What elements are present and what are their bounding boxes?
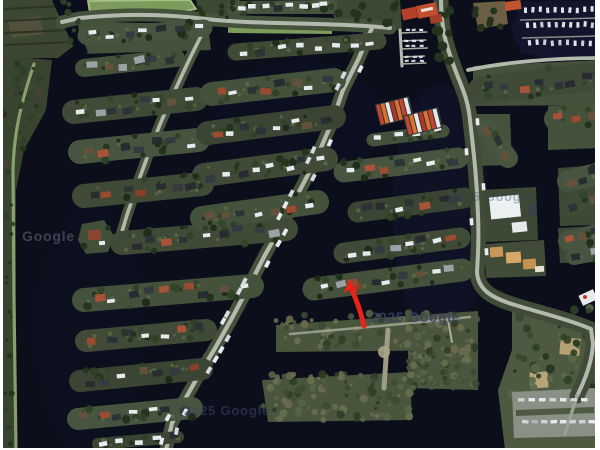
scrub: [318, 321, 326, 329]
scrub: [322, 382, 328, 388]
grass: [362, 284, 367, 289]
house: [255, 227, 265, 233]
house: [444, 264, 454, 272]
scrub: [368, 388, 376, 396]
tree: [444, 147, 449, 152]
tree: [389, 273, 396, 280]
scrub: [286, 372, 294, 380]
tree: [536, 91, 542, 97]
tree: [323, 36, 328, 41]
boat: [550, 40, 554, 46]
scrub: [394, 404, 399, 409]
house: [96, 109, 106, 116]
tree: [219, 10, 225, 16]
scrub: [433, 335, 440, 342]
tree: [131, 92, 137, 98]
moored-boat: [412, 40, 416, 42]
google-watermark-right: 2025 Google: [450, 190, 533, 204]
scrub: [383, 413, 391, 421]
tree: [201, 217, 205, 221]
scrub: [441, 360, 448, 367]
tree: [145, 34, 152, 41]
scrub: [392, 396, 400, 404]
grass: [447, 155, 451, 159]
grass: [134, 418, 137, 421]
boat: [539, 6, 542, 12]
scrub: [413, 327, 418, 332]
scrub: [343, 408, 348, 413]
grass: [426, 234, 429, 237]
shrub: [547, 375, 554, 382]
house: [374, 135, 381, 140]
tree: [328, 287, 333, 292]
shrub: [36, 89, 43, 96]
tree: [116, 54, 121, 59]
grass: [280, 200, 283, 203]
shrub: [6, 266, 9, 269]
house: [405, 199, 414, 206]
scrub: [292, 320, 295, 323]
house: [273, 5, 282, 12]
scrub: [418, 356, 421, 359]
satellite-map-canvas[interactable]: Google 2025 Google 2025 Google 2025 Goog…: [0, 0, 600, 450]
tree: [201, 11, 206, 16]
tree: [184, 225, 188, 229]
tree: [145, 247, 150, 252]
tree: [329, 83, 333, 87]
house: [315, 46, 322, 51]
beige-building: [535, 266, 544, 273]
grass: [84, 104, 87, 107]
house: [91, 192, 100, 199]
scrub: [322, 402, 330, 410]
scrub: [405, 412, 413, 420]
scrub: [332, 404, 338, 410]
house: [500, 84, 509, 90]
house: [177, 325, 186, 332]
tree-line: [434, 52, 444, 62]
house: [571, 253, 581, 260]
scrub: [407, 378, 414, 385]
house: [255, 127, 266, 135]
tree: [197, 6, 202, 11]
tree: [247, 49, 255, 57]
grass: [536, 87, 541, 92]
tree: [121, 39, 125, 43]
tree: [128, 337, 133, 342]
parked-caravan: [464, 148, 468, 155]
shrub: [20, 145, 27, 152]
tree: [241, 240, 249, 248]
tree: [335, 9, 343, 17]
boat: [554, 7, 557, 13]
house: [133, 146, 143, 153]
house: [119, 64, 128, 71]
boat: [524, 8, 527, 14]
shrub: [5, 281, 8, 284]
tree: [327, 3, 334, 10]
tree: [123, 415, 127, 419]
scrub: [274, 403, 278, 407]
house: [161, 238, 172, 246]
moored-boat: [420, 60, 424, 63]
boat: [576, 22, 579, 28]
scrub: [308, 374, 313, 379]
shrub: [38, 115, 41, 118]
tree: [441, 244, 445, 248]
house: [293, 79, 303, 87]
beige-building: [506, 251, 522, 263]
scrub: [344, 384, 350, 390]
tree: [139, 414, 147, 422]
house: [218, 87, 227, 94]
house: [372, 279, 381, 285]
shrub: [25, 97, 29, 101]
scrub: [274, 386, 280, 392]
house: [145, 236, 155, 243]
boat: [546, 8, 549, 14]
grass: [157, 55, 160, 58]
house: [117, 374, 126, 379]
parked-car: [549, 398, 556, 402]
boat: [535, 39, 539, 45]
house: [319, 1, 327, 6]
grass: [215, 218, 218, 221]
scrub: [285, 321, 289, 325]
house: [179, 237, 188, 243]
house: [248, 4, 256, 9]
grass: [254, 207, 257, 210]
scrub: [301, 320, 309, 328]
grass: [207, 166, 210, 169]
left-frame-border: [0, 0, 3, 450]
grass: [216, 238, 219, 241]
house: [194, 323, 204, 330]
tree: [97, 286, 104, 293]
boat: [543, 39, 547, 45]
tree: [283, 124, 290, 131]
grass: [125, 28, 129, 32]
scrub: [344, 380, 347, 383]
tree: [292, 91, 298, 97]
tree: [389, 155, 394, 160]
scrub: [438, 376, 443, 381]
tree: [208, 221, 212, 225]
scrub: [414, 332, 422, 340]
tree: [272, 89, 279, 96]
scrub: [360, 395, 368, 403]
scrub: [371, 377, 377, 383]
tree: [203, 225, 209, 231]
boat: [589, 41, 592, 47]
grass: [182, 336, 186, 340]
scrub: [284, 336, 287, 339]
tree: [585, 121, 592, 128]
grass: [124, 248, 128, 252]
house: [198, 291, 209, 299]
scrub: [320, 409, 326, 415]
house: [88, 30, 96, 35]
shrub: [18, 131, 22, 135]
scrub: [280, 409, 288, 417]
moored-boat: [411, 45, 415, 47]
boat: [533, 23, 536, 29]
scrub: [323, 345, 327, 349]
scrub: [384, 392, 392, 400]
grass: [290, 6, 294, 10]
tree: [387, 252, 395, 260]
shrub: [21, 84, 25, 88]
house: [213, 131, 223, 138]
boat: [540, 22, 544, 28]
scrub: [466, 328, 471, 333]
grass: [430, 130, 434, 134]
tree-line: [446, 57, 454, 65]
google-watermark-left: Google: [22, 228, 75, 244]
scrub: [318, 370, 326, 378]
tree: [397, 281, 404, 288]
islet-house: [88, 229, 102, 240]
grass: [174, 233, 178, 237]
grass: [315, 123, 317, 125]
tree: [223, 95, 230, 102]
shrub: [28, 83, 34, 89]
scrub: [326, 337, 331, 342]
tree: [165, 376, 172, 383]
scrub: [334, 345, 337, 348]
scrub: [410, 385, 416, 391]
house: [86, 61, 97, 68]
scrub: [354, 396, 357, 399]
house: [253, 167, 260, 172]
house: [232, 225, 242, 232]
parking-divider: [516, 410, 594, 413]
tree: [487, 17, 494, 24]
house: [132, 243, 142, 250]
grass: [242, 88, 245, 91]
scrub: [458, 339, 466, 347]
house: [165, 56, 175, 64]
tree: [303, 115, 307, 119]
grass: [498, 145, 502, 149]
tree: [267, 169, 272, 174]
house: [95, 293, 106, 302]
scrub: [275, 417, 278, 420]
moored-boat: [419, 29, 423, 32]
scrub: [309, 384, 317, 392]
tree-line: [445, 30, 452, 37]
scrub: [266, 384, 274, 392]
house: [145, 55, 156, 62]
tree: [226, 124, 233, 131]
scrub: [356, 394, 359, 397]
house: [363, 251, 371, 256]
tree: [408, 137, 413, 142]
grass: [321, 290, 324, 293]
shrub: [532, 343, 540, 351]
scrub: [429, 384, 435, 390]
boat: [561, 7, 564, 13]
scrub: [472, 380, 480, 388]
scrub: [376, 401, 380, 405]
parked-car: [518, 398, 525, 402]
tree: [276, 155, 284, 163]
tree: [285, 38, 291, 44]
scrub: [429, 340, 432, 343]
tree: [81, 243, 88, 250]
scrub: [423, 347, 427, 351]
shrub: [560, 334, 567, 341]
grass: [591, 175, 595, 179]
grass: [155, 192, 158, 195]
beige-building: [523, 259, 537, 270]
parked-car: [581, 398, 588, 402]
scrub: [268, 371, 275, 378]
moored-boat: [406, 29, 410, 31]
parked-car: [560, 420, 567, 424]
tree: [418, 250, 423, 255]
house: [553, 113, 563, 120]
tree: [497, 23, 503, 29]
scrub: [311, 394, 317, 400]
house: [571, 115, 581, 122]
tree: [358, 2, 366, 10]
house: [139, 367, 147, 374]
house: [582, 73, 592, 80]
tree: [585, 107, 591, 113]
building-wing: [527, 204, 536, 217]
house: [380, 167, 389, 174]
tree: [140, 152, 145, 157]
tree: [348, 48, 353, 53]
tree: [155, 101, 162, 108]
shrub: [6, 171, 10, 175]
scrub: [402, 376, 408, 382]
grass: [87, 299, 90, 302]
house: [332, 43, 340, 48]
shrub: [527, 333, 533, 339]
tree: [582, 81, 586, 85]
tree: [528, 93, 534, 99]
scrub: [422, 354, 425, 357]
house: [152, 137, 162, 145]
grass: [83, 155, 87, 159]
scrub: [274, 318, 279, 323]
grass: [460, 266, 462, 268]
tree: [335, 274, 339, 278]
shrub: [19, 65, 27, 73]
grass: [435, 158, 440, 163]
tree: [129, 440, 134, 445]
tree: [251, 133, 255, 137]
house: [296, 43, 304, 48]
scrub: [295, 407, 303, 415]
tree: [478, 24, 485, 31]
scrub: [393, 339, 398, 344]
house: [153, 435, 162, 440]
scrub: [391, 380, 397, 386]
scrub: [461, 370, 468, 377]
scrub: [444, 347, 451, 354]
grass: [283, 166, 286, 169]
tree: [187, 232, 194, 239]
grass: [323, 161, 327, 165]
tree: [430, 280, 435, 285]
house: [312, 3, 320, 8]
house: [238, 6, 246, 11]
grass: [280, 115, 283, 118]
shrub: [66, 2, 71, 7]
scrub: [290, 325, 295, 330]
house: [139, 96, 150, 102]
shrub: [5, 338, 8, 341]
tree: [265, 76, 270, 81]
house: [432, 269, 441, 274]
shrub: [570, 349, 577, 356]
shrub: [570, 371, 574, 375]
tree-line: [445, 6, 454, 15]
tree: [142, 175, 148, 181]
house: [390, 245, 401, 252]
scrub: [333, 319, 338, 324]
peninsula: [84, 58, 176, 68]
tree: [218, 99, 223, 104]
boat: [581, 40, 584, 46]
grass: [550, 87, 553, 90]
parked-car: [541, 420, 548, 424]
grass: [589, 80, 591, 82]
tree-line: [436, 26, 443, 33]
scrub: [298, 399, 305, 406]
tree: [132, 133, 138, 139]
house: [85, 381, 95, 387]
scrub: [379, 412, 384, 417]
tree: [300, 37, 305, 42]
boathouse-marker: [583, 295, 587, 299]
scrub: [462, 381, 470, 389]
scrub: [398, 384, 404, 390]
shrub: [10, 315, 13, 318]
scrub: [471, 343, 479, 351]
marina-dock: [401, 63, 426, 64]
shrub: [542, 353, 549, 360]
tree: [331, 119, 335, 123]
shrub: [31, 67, 34, 70]
parked-car: [522, 420, 529, 424]
grass: [109, 444, 112, 447]
tree: [175, 133, 181, 139]
shrub: [529, 377, 536, 384]
tree: [297, 50, 303, 56]
scrub: [345, 394, 349, 398]
tree: [151, 111, 155, 115]
scrub: [274, 395, 279, 400]
shrub: [9, 91, 13, 95]
shrub: [520, 355, 527, 362]
white-building: [512, 221, 528, 233]
grass: [390, 210, 393, 213]
grass: [504, 90, 508, 94]
shrub: [9, 426, 11, 428]
scrub: [358, 373, 363, 378]
tree: [107, 95, 114, 102]
house: [347, 168, 355, 173]
grass: [111, 296, 114, 299]
scrub: [422, 370, 428, 376]
grass: [408, 161, 413, 166]
parked-car: [531, 420, 538, 424]
house: [165, 137, 175, 144]
